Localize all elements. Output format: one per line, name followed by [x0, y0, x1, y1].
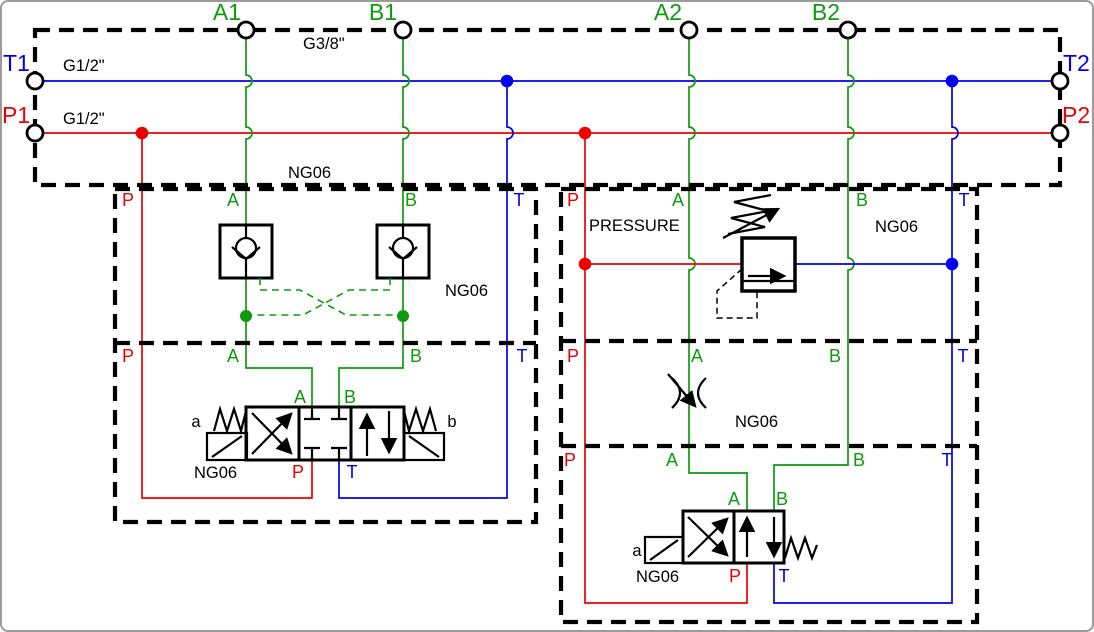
relief-spring — [728, 195, 771, 234]
thread-label-top: G3/8" — [303, 35, 345, 53]
valve2-port-p: P — [729, 566, 741, 586]
valve2-port-a: A — [728, 489, 740, 509]
schematic-svg: A1 B1 A2 B2 T1 P1 T2 P2 G3/8" G1/2" G1/2… — [0, 0, 1094, 632]
valve2-port-b: B — [776, 489, 788, 509]
s1m2-port-p: P — [122, 346, 134, 366]
s1m2-port-t: T — [517, 346, 528, 366]
s2m3-port-t: T — [942, 450, 953, 470]
junction-dot-relief-out — [946, 258, 959, 271]
s1m2-port-b: B — [410, 346, 422, 366]
s1m1-port-t: T — [514, 190, 525, 210]
s1m1-port-a: A — [227, 190, 239, 210]
sol-b-label: b — [447, 413, 456, 431]
port-label-a1: A1 — [213, 0, 241, 25]
pressure-drop-station2 — [585, 133, 747, 603]
solenoid-a — [207, 433, 247, 460]
port-label-t1: T1 — [3, 50, 30, 76]
solenoid-b — [404, 433, 444, 460]
pilot-line-a-to-b — [260, 278, 403, 315]
station2: P A B T PRESSURE NG06 P A B T NG06 P A — [561, 189, 977, 622]
thread-label-t: G1/2" — [63, 57, 105, 75]
work-line-a2 — [689, 38, 747, 511]
s2m2-port-a: A — [691, 346, 703, 366]
valve2-size-label: NG06 — [636, 568, 679, 586]
pressure-module-label: PRESSURE — [589, 217, 680, 235]
junction-dot-pilot-b — [397, 310, 409, 322]
station1: P A B T NG06 P A B T — [115, 189, 536, 522]
s2m2-port-b: B — [829, 346, 841, 366]
manifold-block: A1 B1 A2 B2 T1 P1 T2 P2 G3/8" G1/2" G1/2… — [2, 0, 1090, 185]
spring-right — [404, 409, 436, 431]
s1m1-port-b: B — [405, 190, 417, 210]
throttle-valve[interactable] — [668, 374, 706, 408]
s2m3-port-a: A — [666, 450, 678, 470]
pilot-line-b-to-a — [246, 278, 390, 315]
s2m2-port-p: P — [567, 346, 579, 366]
window-border — [1, 1, 1093, 631]
directional-valve-2[interactable]: a A B P T NG06 — [632, 489, 817, 586]
port-a2 — [681, 22, 697, 38]
flow-lines — [35, 38, 1060, 603]
junction-dot-relief-in — [579, 258, 592, 271]
valve1-port-p: P — [292, 462, 304, 482]
junction-dot-p1 — [136, 127, 149, 140]
port-label-p1: P1 — [2, 102, 30, 128]
s2m1-port-b: B — [856, 190, 868, 210]
port-label-p2: P2 — [1062, 102, 1090, 128]
s2m2-port-t: T — [958, 346, 969, 366]
directional-valve-1[interactable]: a b A B P T NG06 — [191, 387, 456, 482]
sol-a-label: a — [191, 413, 201, 431]
valve1-port-t: T — [347, 462, 358, 482]
port-label-b1: B1 — [369, 0, 397, 25]
valve1-port-b: B — [344, 387, 356, 407]
junction-dot-t1 — [501, 75, 514, 88]
port-b2 — [840, 22, 856, 38]
s2m1-port-a: A — [672, 190, 684, 210]
check-valve-b[interactable] — [377, 225, 429, 278]
port-label-t2: T2 — [1063, 50, 1090, 76]
valve2-port-t: T — [779, 566, 790, 586]
port-label-b2: B2 — [812, 0, 840, 25]
relief-valve[interactable] — [717, 195, 795, 318]
spring-left — [214, 409, 246, 431]
thread-label-p: G1/2" — [63, 110, 105, 128]
s2m3-port-p: P — [564, 450, 576, 470]
s2m3-port-b: B — [853, 450, 865, 470]
s1m1-size-label: NG06 — [445, 282, 488, 300]
junction-dot-t2 — [946, 75, 959, 88]
junction-dot-pilot-a — [240, 310, 252, 322]
s1m2-port-a: A — [227, 346, 239, 366]
check-valve-a[interactable] — [220, 225, 272, 278]
work-line-a1 — [246, 38, 312, 407]
spring-right — [785, 538, 817, 558]
port-b1 — [395, 22, 411, 38]
s2m1-size-label: NG06 — [875, 218, 918, 236]
work-line-b1 — [339, 38, 409, 407]
s2m2-size-label: NG06 — [735, 413, 778, 431]
s1m1-port-p: P — [122, 190, 134, 210]
hydraulic-schematic-canvas: A1 B1 A2 B2 T1 P1 T2 P2 G3/8" G1/2" G1/2… — [0, 0, 1094, 632]
manifold-outline — [35, 30, 1060, 185]
station1-outline — [115, 189, 536, 522]
s2m1-port-t: T — [959, 190, 970, 210]
valve1-port-a: A — [294, 387, 306, 407]
manifold-size-label: NG06 — [288, 164, 331, 182]
sol-a-label: a — [632, 542, 642, 560]
solenoid-a — [645, 537, 683, 563]
valve1-size-label: NG06 — [194, 464, 237, 482]
port-label-a2: A2 — [654, 0, 682, 25]
s2m1-port-p: P — [567, 190, 579, 210]
junction-dot-p2 — [579, 127, 592, 140]
